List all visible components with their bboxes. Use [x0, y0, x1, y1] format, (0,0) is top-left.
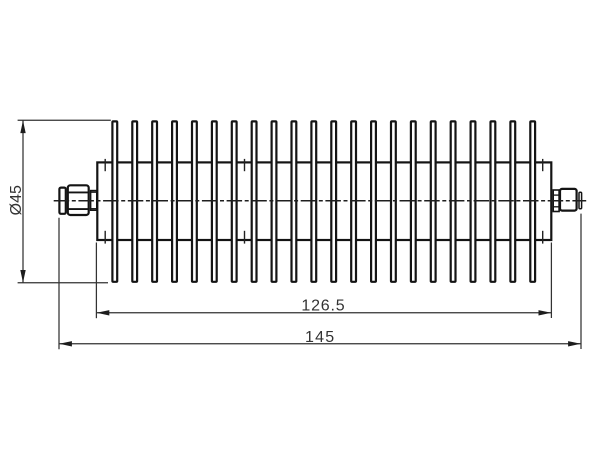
svg-text:126.5: 126.5	[301, 297, 345, 314]
svg-text:145: 145	[305, 329, 335, 346]
svg-text:Ø45: Ø45	[8, 185, 25, 215]
